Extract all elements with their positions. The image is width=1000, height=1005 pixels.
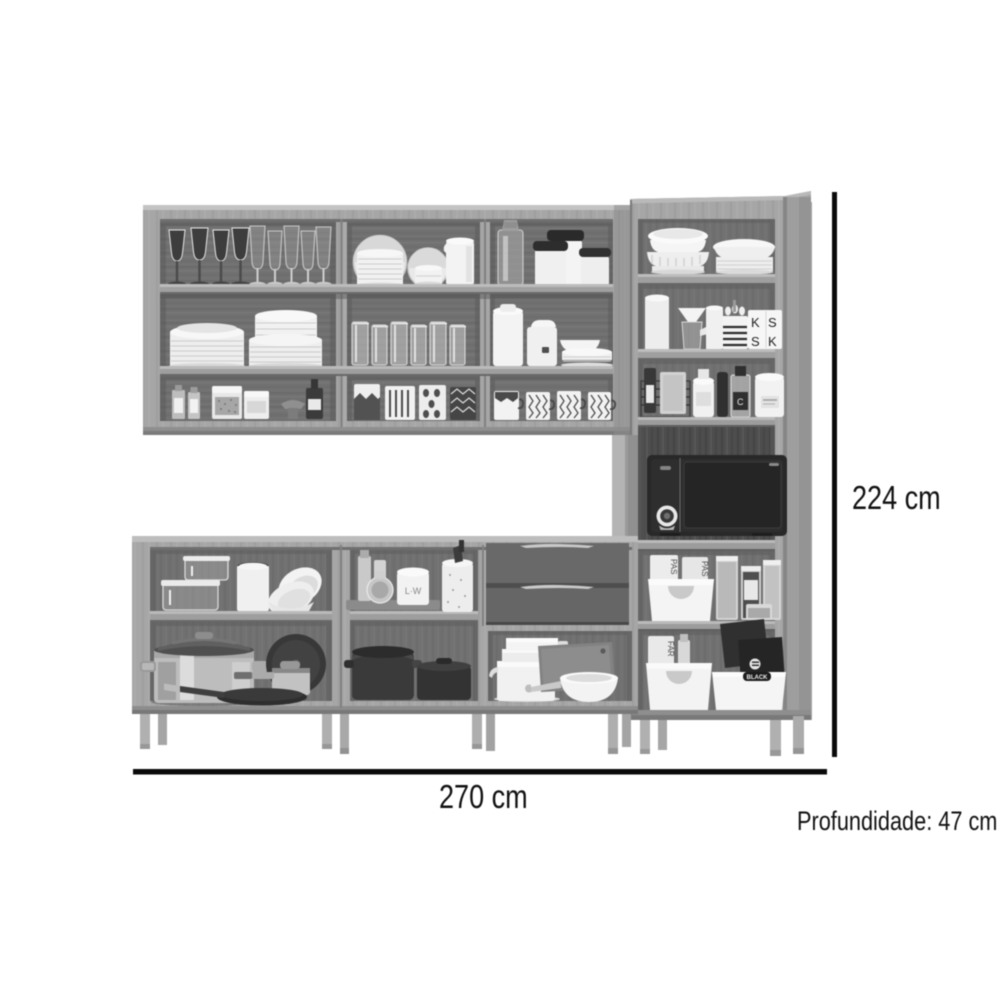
svg-text:K: K bbox=[751, 315, 760, 330]
svg-text:BLACK: BLACK bbox=[747, 675, 769, 681]
svg-text:PAS: PAS bbox=[669, 559, 678, 574]
svg-text:K: K bbox=[768, 334, 777, 349]
svg-text:C: C bbox=[737, 397, 744, 407]
svg-text:S: S bbox=[751, 334, 760, 349]
svg-text:270 cm: 270 cm bbox=[439, 780, 528, 816]
svg-text:L·W: L·W bbox=[405, 586, 422, 596]
svg-text:S: S bbox=[768, 315, 777, 330]
svg-text:FAR: FAR bbox=[666, 641, 675, 657]
svg-text:224 cm: 224 cm bbox=[852, 481, 941, 517]
svg-text:Profundidade: 47 cm: Profundidade: 47 cm bbox=[797, 807, 997, 837]
svg-text:PAS: PAS bbox=[700, 561, 709, 576]
